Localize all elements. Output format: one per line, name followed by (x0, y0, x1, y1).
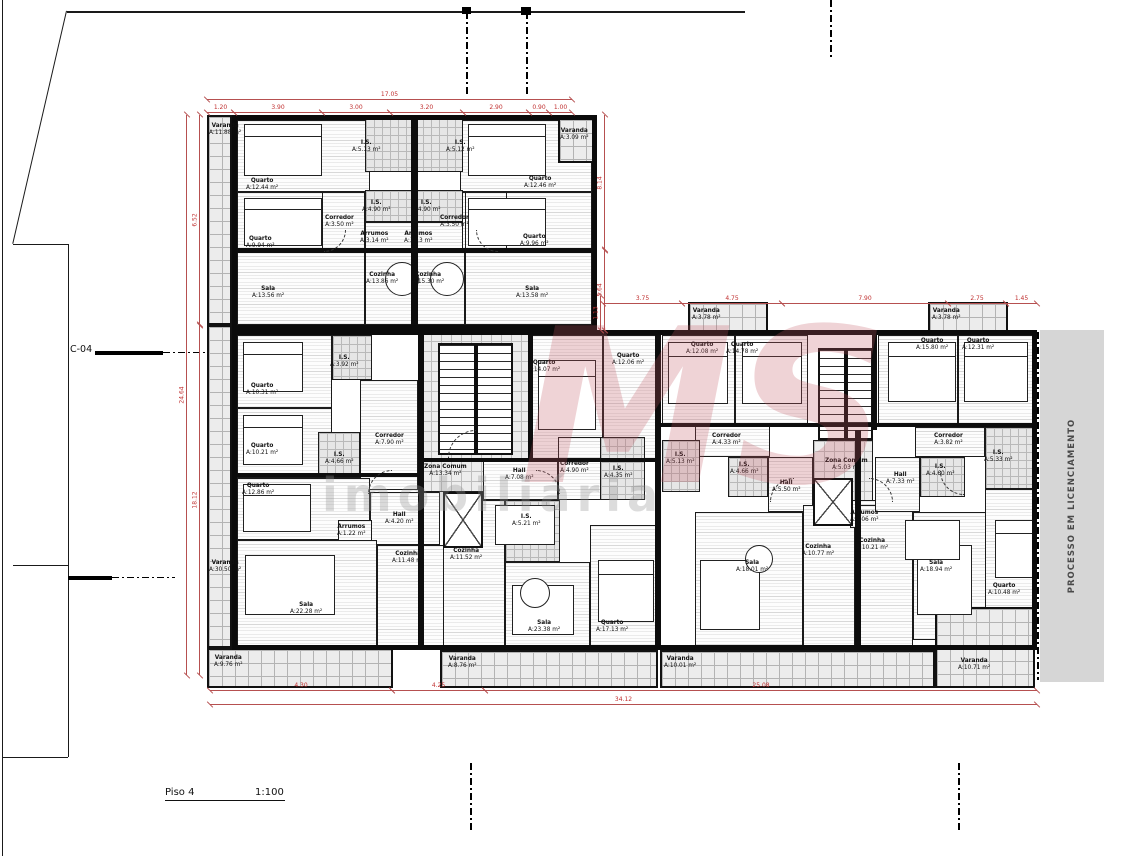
dimension-line: 1.00 (549, 112, 572, 113)
dimension-label: 0.90 (532, 104, 545, 111)
dimension-label: 3.20 (420, 104, 433, 111)
room-area (365, 190, 414, 222)
dimension-label: 1.00 (554, 104, 567, 111)
dimension-line: 1.13 (600, 296, 601, 330)
balcony-area (207, 325, 232, 648)
room-area (803, 505, 855, 650)
dimension-label: 4.25 (432, 682, 445, 689)
interior-wall (655, 330, 661, 650)
room-area (365, 118, 414, 172)
elevator-shaft (443, 492, 483, 548)
dimension-line: 2.75 (948, 303, 1006, 304)
interior-wall (660, 423, 1037, 427)
interior-wall (411, 115, 418, 330)
section-dash-line (830, 0, 832, 58)
dimension-line: 4.25 (392, 690, 485, 691)
room-area (600, 437, 645, 500)
dimension-label: 24.64 (179, 386, 186, 403)
interior-wall (418, 330, 424, 650)
dimension-label: 2.90 (489, 104, 502, 111)
furniture-bed (964, 342, 1028, 402)
room-area (414, 118, 463, 172)
licensing-band: PROCESSO EM LICENCIAMENTO (1040, 330, 1104, 682)
furniture-bed (243, 484, 311, 532)
furniture-round-table (430, 262, 464, 296)
room-area (414, 190, 463, 222)
section-marker-cap (462, 7, 471, 14)
dimension-label: 34.12 (615, 696, 632, 703)
floor-plan-sheet: VarandaA:11.88 m²VarandaA:30.50 m²Varand… (0, 0, 1124, 856)
dimension-label: 1.13 (593, 306, 600, 319)
dimension-line: 7.90 (782, 303, 948, 304)
furniture-table (495, 505, 555, 545)
dimension-line: 6.52 (199, 115, 200, 325)
floor-label: Piso 4 (165, 787, 194, 798)
section-cut-line (68, 576, 112, 580)
section-dash-line (958, 763, 960, 833)
furniture-bed (598, 560, 654, 622)
dimension-line: 34.12 (210, 704, 1037, 705)
dimension-label: 25.08 (752, 682, 769, 689)
balcony-area (935, 607, 1035, 688)
dimension-line: 5.64 (604, 250, 605, 330)
scale-label: 1:100 (255, 787, 284, 798)
furniture-bed (468, 124, 546, 176)
room-area (318, 432, 360, 478)
dimension-line: 2.90 (463, 112, 529, 113)
furniture-bed (244, 198, 322, 246)
dimension-label: 1.20 (214, 104, 227, 111)
dimension-label: 8.14 (597, 176, 604, 189)
furniture-round-table (520, 578, 550, 608)
balcony-area (558, 118, 595, 163)
title-underline (165, 800, 285, 801)
room-area (728, 457, 768, 497)
section-dash-line (526, 12, 528, 95)
section-cut-dash (112, 577, 175, 578)
room-area (985, 427, 1035, 489)
interior-wall (232, 248, 597, 253)
furniture-bed (668, 342, 728, 404)
room-area (558, 437, 603, 500)
interior-wall (872, 330, 877, 430)
dimension-line: 25.08 (485, 690, 1037, 691)
room-area (915, 427, 985, 457)
site-boundary-line (2, 757, 68, 758)
furniture-round-table (745, 545, 773, 573)
dimension-line: 3.90 (234, 112, 322, 113)
balcony-area (928, 302, 1008, 334)
furniture-bed (243, 342, 303, 392)
dimension-line: 1.45 (1006, 303, 1037, 304)
dimension-label: 4.30 (294, 682, 307, 689)
section-cut-line (95, 351, 163, 355)
furniture-table (905, 520, 960, 560)
dimension-label: 3.90 (271, 104, 284, 111)
room-area (662, 440, 700, 492)
interior-wall (424, 458, 659, 462)
licensing-band-text: PROCESSO EM LICENCIAMENTO (1067, 419, 1077, 593)
dimension-line: 8.14 (604, 115, 605, 250)
furniture-bed (995, 520, 1033, 578)
interior-wall (232, 473, 422, 477)
elevator-shaft (813, 478, 853, 526)
dimension-label: 2.75 (970, 295, 983, 302)
room-area (237, 252, 365, 325)
furniture-bed (243, 415, 303, 465)
dimension-label: 1.45 (1015, 295, 1028, 302)
dimension-line: 24.64 (186, 115, 187, 675)
furniture-bed (888, 342, 956, 402)
room-area (332, 335, 372, 380)
site-boundary-line (2, 0, 3, 856)
dimension-label: 3.00 (349, 104, 362, 111)
furniture-bed (244, 124, 322, 176)
room-area (695, 425, 770, 457)
furniture-bed (742, 342, 802, 404)
section-marker-cap (521, 7, 531, 15)
section-marker-label: C-04 (70, 344, 92, 355)
site-boundary-line (12, 11, 67, 244)
plan-canvas: VarandaA:11.88 m²VarandaA:30.50 m²Varand… (0, 0, 1124, 856)
balcony-area (440, 650, 658, 688)
site-boundary-line (68, 244, 69, 757)
site-boundary-line (67, 11, 745, 13)
dimension-label: 6.52 (192, 213, 199, 226)
dimension-line: 1.20 (207, 112, 234, 113)
room-area (465, 252, 592, 325)
dimension-line: 0.90 (529, 112, 549, 113)
balcony-area (207, 115, 232, 325)
dimension-label: 18.12 (192, 491, 199, 508)
dimension-label: 3.75 (636, 295, 649, 302)
dimension-label: 7.90 (858, 295, 871, 302)
section-dash-line (470, 763, 472, 833)
furniture-bed (538, 360, 596, 430)
dimension-line: 17.05 (207, 99, 572, 100)
dimension-line: 3.00 (322, 112, 390, 113)
title-block: Piso 4 1:100 (165, 787, 194, 798)
site-boundary-line (13, 565, 68, 566)
interior-wall (528, 330, 533, 462)
dimension-line: 3.75 (603, 303, 682, 304)
balcony-area (660, 650, 935, 688)
dimension-line: 18.12 (199, 325, 200, 675)
interior-wall (855, 430, 861, 650)
section-dash-line (1037, 332, 1039, 680)
section-dash-line (466, 12, 468, 95)
room-area (370, 492, 440, 545)
dimension-label: 4.75 (725, 295, 738, 302)
dimension-line: 4.30 (210, 690, 392, 691)
balcony-area (688, 302, 768, 334)
dimension-line: 4.75 (682, 303, 782, 304)
dimension-line: 3.20 (390, 112, 463, 113)
furniture-sofa (245, 555, 335, 615)
site-boundary-line (13, 244, 68, 245)
room-area (377, 545, 445, 650)
dimension-label: 17.05 (381, 91, 398, 98)
